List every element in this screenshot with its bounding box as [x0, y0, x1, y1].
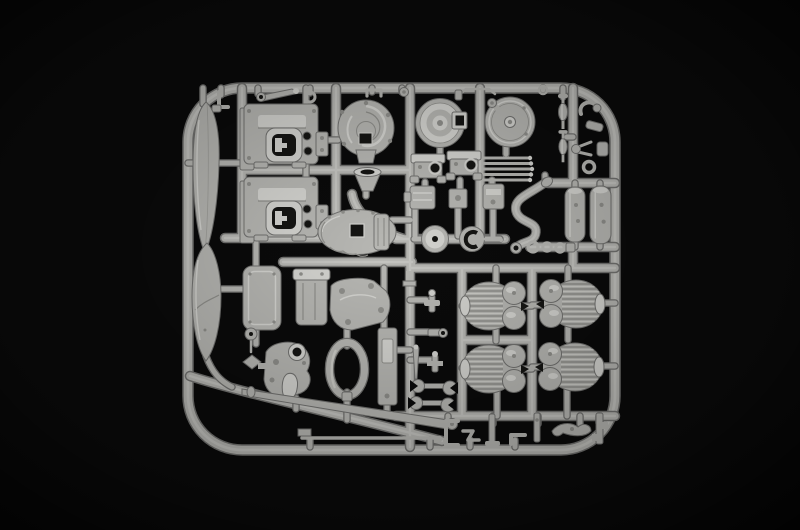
vignette-overlay — [0, 0, 800, 530]
sprue-photo: Light grey plastic model-kit sprue with … — [0, 0, 800, 530]
